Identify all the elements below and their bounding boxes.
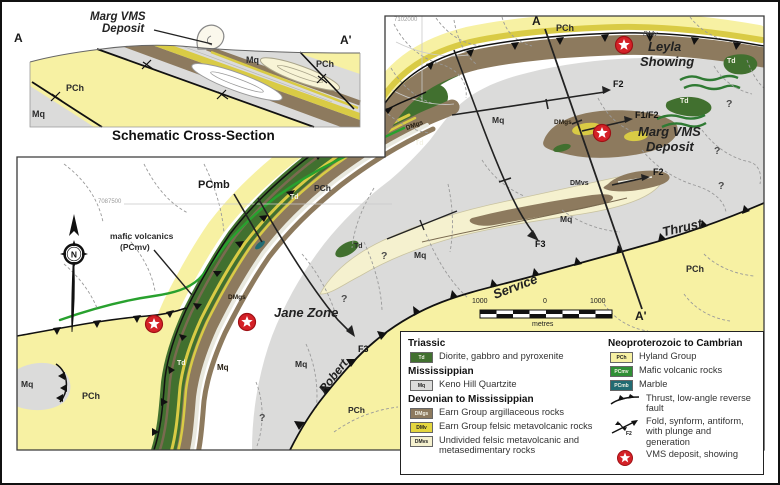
unit-mq-west: Mq [21,380,33,389]
unit-pch-bottom: PCh [348,406,365,415]
cs-unit-pch-left: PCh [66,84,84,93]
label-question-6: ? [259,413,265,424]
unit-dmvs-1: DMvs [570,180,589,187]
unit-td-3: Td [415,140,424,147]
legend-symbol-label: Thrust, low-angle reverse fault [646,393,757,414]
unit-dmv-topband: DMv [643,31,657,38]
vms-symbol-icon [610,449,640,467]
swatch-pch: PCh [610,352,633,363]
cross-section-inset [30,25,360,127]
legend-heading-devonian: Devonian to Mississippian [408,394,600,405]
fold-symbol-icon: F2 [610,416,640,436]
legend-left-column: Triassic Td Diorite, gabbro and pyroxeni… [408,337,600,470]
legend-item-label: Marble [639,379,667,389]
legend-item: PCmb Marble [610,379,757,391]
legend-item-label: Hyland Group [639,351,696,361]
grid-label-top: 7102000 [394,17,417,23]
unit-pch-midband: PCh [314,184,331,193]
label-f2-east: F2 [653,168,664,177]
legend-heading-triassic: Triassic [408,338,600,349]
legend-item: DMvs Undivided felsic metavolcanic and m… [410,435,600,456]
map-legend: Triassic Td Diorite, gabbro and pyroxeni… [400,331,764,475]
legend-item: DMgs Earn Group argillaceous rocks [410,407,600,419]
geologic-map-figure: N Marg V [0,0,780,485]
label-f1f2: F1/F2 [635,111,659,120]
legend-item-label: Diorite, gabbro and pyroxenite [439,351,564,361]
legend-symbol-vms: VMS deposit, showing [610,449,757,467]
label-mafic-volcanics-2: (PCmv) [120,243,150,252]
swatch-pcmb: PCmb [610,380,633,391]
label-f3-west: F3 [358,345,369,354]
legend-symbol-thrust: Thrust, low-angle reverse fault [610,393,757,414]
cs-unit-mq-left: Mq [32,110,45,119]
legend-item: PCh Hyland Group [610,351,757,363]
legend-heading-neoproterozoic: Neoproterozoic to Cambrian [608,338,757,349]
legend-item-label: Undivided felsic metavolcanic and metase… [439,435,600,456]
cs-marker-a: A [14,32,23,44]
legend-item: Td Diorite, gabbro and pyroxenite [410,351,600,363]
label-f3-center: F3 [535,240,546,249]
legend-item-label: Earn Group felsic metavolcanic rocks [439,421,592,431]
compass-north-label: N [71,250,77,260]
label-leyla-1: Leyla [648,40,681,53]
grid-label-left: 7087500 [98,199,121,205]
label-marg-2: Deposit [646,140,694,153]
unit-td-6: Td [177,360,186,367]
scale-left: 1000 [472,298,488,305]
label-f2-north: F2 [613,80,624,89]
label-question-4: ? [381,251,387,262]
unit-mq-4: Mq [217,364,229,372]
swatch-mq: Mq [410,380,433,391]
unit-mq-2: Mq [560,215,572,224]
unit-td-1: Td [727,58,736,65]
label-question-2: ? [714,146,720,157]
legend-item: DMv Earn Group felsic metavolcanic rocks [410,421,600,433]
legend-symbol-label: Fold, synform, antiform, with plunge and… [646,416,757,447]
label-question-3: ? [718,181,724,192]
unit-td-2: Td [680,98,689,105]
scale-unit: metres [532,321,553,328]
unit-td-5: Td [354,243,363,250]
label-question-1: ? [726,99,732,110]
label-question-5: ? [341,294,347,305]
cs-deposit-label-line1: Marg VMS [90,12,146,24]
swatch-dmvs: DMvs [410,436,433,447]
label-mafic-volcanics-1: mafic volcanics [110,232,173,241]
legend-heading-mississippian: Mississippian [408,366,600,377]
swatch-dmv: DMv [410,422,433,433]
unit-pch-southwest: PCh [82,392,100,401]
scale-bar [480,310,612,318]
unit-pch-south: PCh [686,265,704,274]
unit-td-4: Td [290,194,299,201]
unit-dmgs-2: DMgs [554,120,572,127]
label-pcmb: PCmb [198,180,230,191]
legend-item: PCmv Mafic volcanic rocks [610,365,757,377]
label-leyla-2: Showing [640,55,694,68]
label-marg-1: Marg VMS [638,125,701,138]
cs-unit-mq-right: Mq [246,56,259,65]
section-marker-a: A [532,15,541,27]
unit-mq-5: Mq [295,360,307,369]
cs-deposit-label-line2: Deposit [102,24,144,36]
legend-item-label: Earn Group argillaceous rocks [439,407,564,417]
unit-pch-topband: PCh [556,24,574,33]
legend-symbol-fold: F2 Fold, synform, antiform, with plunge … [610,416,757,447]
legend-right-column: Neoproterozoic to Cambrian PCh Hyland Gr… [608,337,757,470]
legend-item-label: Mafic volcanic rocks [639,365,722,375]
thrust-symbol-icon [610,393,640,407]
unit-mq-3: Mq [414,251,426,260]
unit-dmgs-3: DMgs [228,295,246,302]
swatch-pcmv: PCmv [610,366,633,377]
scale-zero: 0 [543,298,547,305]
cs-marker-a-prime: A' [340,34,352,46]
legend-item: Mq Keno Hill Quartzite [410,379,600,391]
legend-item-label: Keno Hill Quartzite [439,379,517,389]
swatch-td: Td [410,352,433,363]
legend-symbol-label: VMS deposit, showing [646,449,738,459]
cs-caption: Schematic Cross-Section [112,129,275,143]
swatch-dmgs: DMgs [410,408,433,419]
section-marker-a-prime: A' [635,310,647,322]
unit-mq-1: Mq [492,116,504,125]
cs-unit-pch-right: PCh [316,60,334,69]
fold-symbol-tag: F2 [626,431,632,436]
scale-right: 1000 [590,298,606,305]
label-jane-zone: Jane Zone [274,306,338,319]
